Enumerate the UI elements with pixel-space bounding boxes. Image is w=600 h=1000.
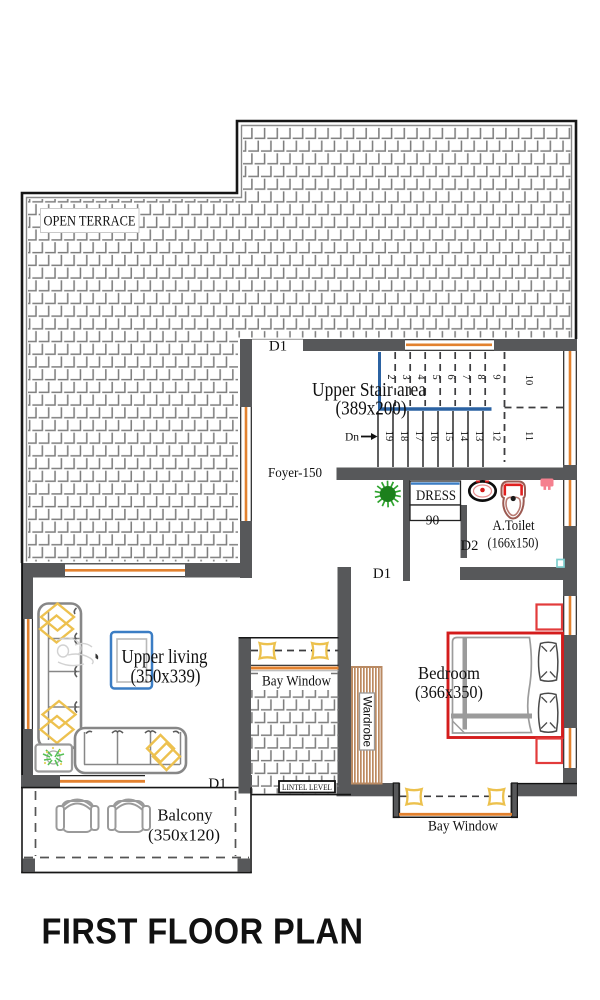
svg-text:(389x200): (389x200) [336,399,407,420]
svg-text:8: 8 [475,374,486,379]
svg-text:OPEN TERRACE: OPEN TERRACE [44,214,136,230]
svg-text:Wardrobe: Wardrobe [360,696,373,747]
svg-text:13: 13 [473,431,484,442]
svg-text:Foyer-150: Foyer-150 [268,466,322,481]
svg-text:90: 90 [426,513,440,528]
svg-text:D1: D1 [269,339,287,355]
svg-text:5: 5 [430,374,441,379]
svg-text:2: 2 [385,374,396,379]
svg-text:LINTEL LEVEL: LINTEL LEVEL [282,783,332,792]
svg-text:12: 12 [491,431,502,442]
svg-text:9: 9 [491,374,502,379]
svg-text:Dn: Dn [345,432,359,444]
svg-text:15: 15 [443,431,454,442]
svg-text:17: 17 [413,431,424,442]
svg-text:D2: D2 [461,538,479,554]
svg-text:Bay Window: Bay Window [428,819,498,835]
svg-text:(350x339): (350x339) [131,667,201,688]
svg-text:10: 10 [523,375,534,386]
svg-text:7: 7 [460,374,471,379]
svg-text:(350x120): (350x120) [148,826,220,845]
svg-text:D1: D1 [208,776,226,792]
svg-text:Upper living: Upper living [122,647,208,668]
svg-text:Balcony: Balcony [158,806,213,825]
svg-text:A.Toilet: A.Toilet [493,518,535,534]
svg-text:FIRST FLOOR PLAN: FIRST FLOOR PLAN [42,911,364,952]
svg-text:6: 6 [445,374,456,379]
svg-text:19: 19 [383,431,394,442]
svg-text:DRESS: DRESS [416,488,456,504]
svg-text:11: 11 [523,431,534,441]
svg-text:D1: D1 [373,566,391,582]
svg-text:18: 18 [398,431,409,442]
svg-text:(166x150): (166x150) [488,536,539,552]
svg-text:14: 14 [458,431,469,442]
svg-text:16: 16 [428,431,439,442]
svg-text:Bay Window: Bay Window [262,674,331,690]
svg-text:Bedroom: Bedroom [418,663,480,683]
svg-text:(366x350): (366x350) [415,682,483,703]
svg-text:3: 3 [400,374,411,379]
